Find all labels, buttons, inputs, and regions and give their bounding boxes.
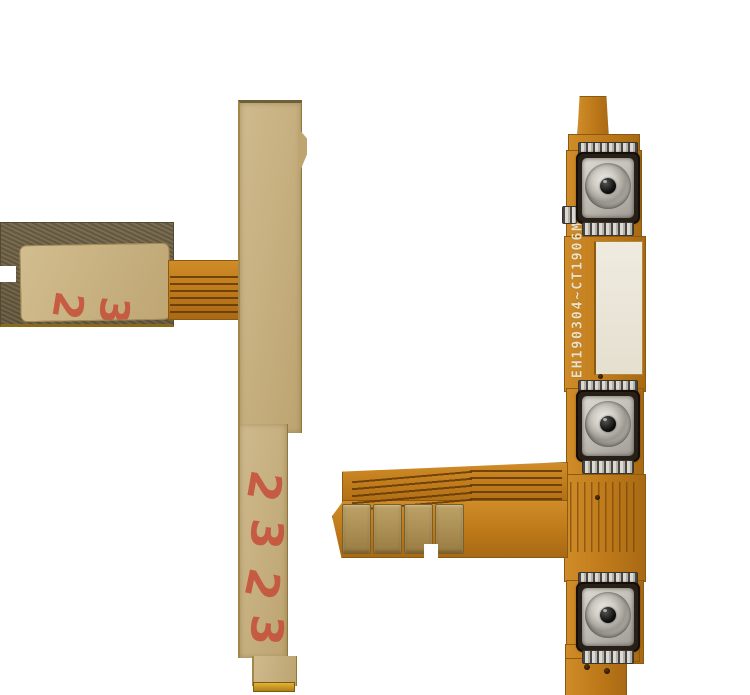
metal-dome [585, 401, 631, 447]
mounting-hole [604, 668, 610, 674]
alignment-hole [595, 495, 600, 500]
switch-plate [582, 158, 634, 218]
arm-trace-fan [470, 470, 562, 504]
switch-contact-bar [582, 650, 634, 664]
switch-plate [582, 588, 634, 646]
metal-dome [585, 163, 631, 209]
strip-traces [570, 482, 636, 552]
connector-pad [373, 504, 402, 554]
switch-frame [576, 390, 640, 462]
mounting-hole [584, 664, 590, 670]
switch-contact-bar [582, 460, 634, 474]
dome-center [600, 178, 616, 194]
dome-center [600, 416, 616, 432]
arm-bottom-notch [424, 544, 438, 558]
solder-tab [562, 206, 577, 224]
connector-pad [435, 504, 464, 554]
photo-stage: 2 3 2 3 2 3 EH190304~CT1906M [0, 0, 750, 695]
right-flex-cable: EH190304~CT1906M [0, 0, 750, 695]
stiffener-backing [594, 241, 643, 375]
switch-frame [576, 152, 640, 224]
connector-pad [342, 504, 371, 554]
dome-center [600, 607, 616, 623]
switch-frame [576, 582, 640, 652]
metal-dome [585, 592, 631, 638]
switch-plate [582, 396, 634, 456]
switch-contact-bar [582, 222, 634, 236]
alignment-hole [598, 374, 603, 379]
